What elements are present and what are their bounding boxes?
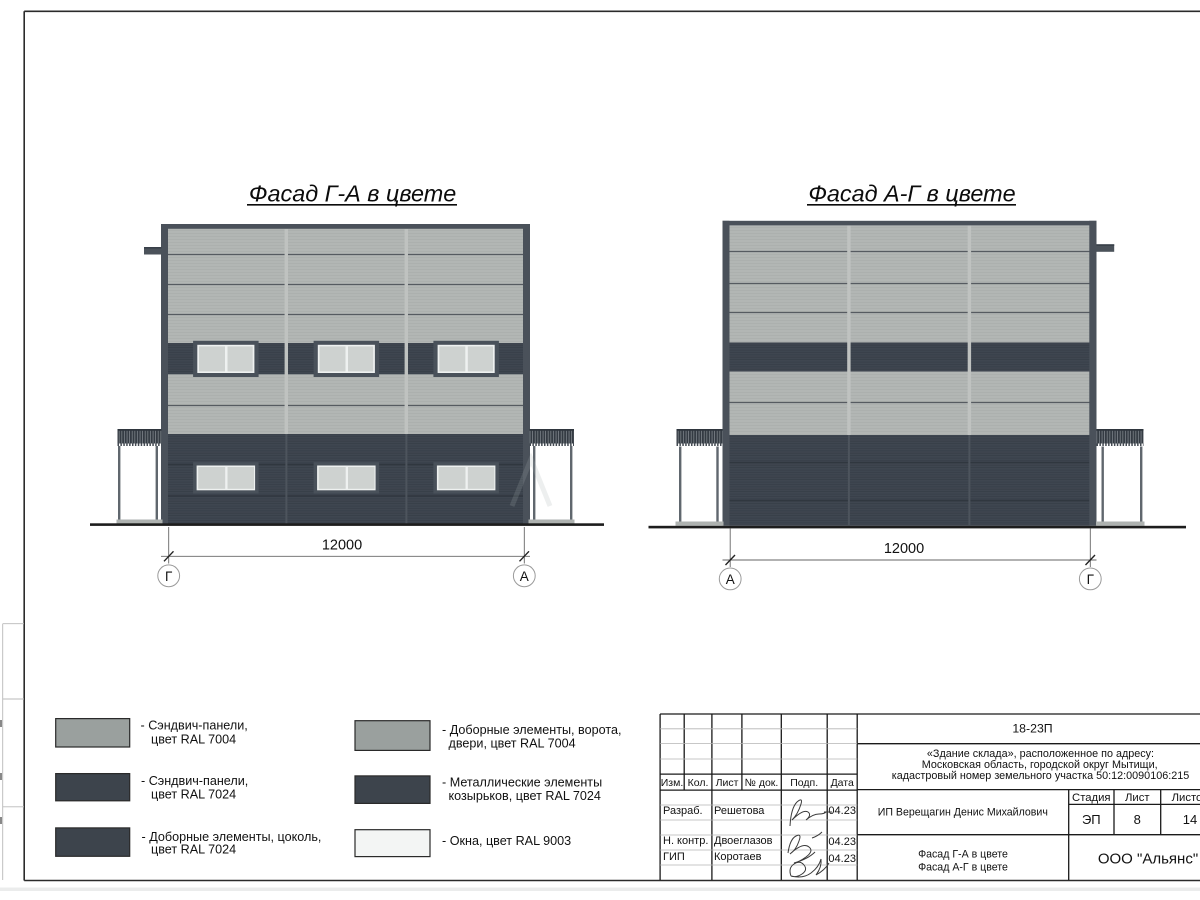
svg-text:ООО "Альянс": ООО "Альянс" bbox=[1098, 850, 1198, 867]
svg-text:кадастровый номер земельного у: кадастровый номер земельного участка 50:… bbox=[892, 770, 1189, 782]
svg-text:8: 8 bbox=[1134, 812, 1141, 827]
svg-text:Дата: Дата bbox=[831, 777, 854, 789]
svg-text:- Металлические элементы: - Металлические элементы bbox=[442, 775, 602, 789]
svg-text:12000: 12000 bbox=[322, 538, 362, 554]
svg-text:- Сэндвич-панели,: - Сэндвич-панели, bbox=[141, 719, 248, 733]
svg-text:04.23: 04.23 bbox=[828, 836, 856, 848]
svg-text:А: А bbox=[520, 569, 529, 584]
svg-text:А: А bbox=[726, 572, 735, 587]
svg-text:цвет RAL 7024: цвет RAL 7024 bbox=[151, 842, 236, 856]
svg-text:Фасад Г-А в цвете: Фасад Г-А в цвете bbox=[918, 848, 1008, 860]
svg-text:ЭП: ЭП bbox=[1082, 812, 1101, 827]
svg-text:- Доборные элементы, ворота,: - Доборные элементы, ворота, bbox=[442, 723, 621, 737]
svg-text:Решетова: Решетова bbox=[714, 805, 765, 817]
svg-text:Г: Г bbox=[165, 569, 173, 584]
svg-text:Листов: Листов bbox=[1172, 792, 1200, 804]
svg-text:ИП Верещагин Денис Михайлович: ИП Верещагин Денис Михайлович bbox=[878, 807, 1048, 819]
svg-text:Кол.: Кол. bbox=[688, 777, 709, 789]
svg-text:14: 14 bbox=[1183, 812, 1197, 827]
svg-text:- Сэндвич-панели,: - Сэндвич-панели, bbox=[141, 774, 248, 788]
svg-text:Коротаев: Коротаев bbox=[714, 851, 762, 863]
svg-text:двери, цвет RAL 7004: двери, цвет RAL 7004 bbox=[449, 737, 576, 751]
svg-text:Фасад А-Г в цвете: Фасад А-Г в цвете bbox=[918, 862, 1008, 874]
svg-text:04.23: 04.23 bbox=[828, 805, 856, 817]
svg-text:- Окна, цвет RAL 9003: - Окна, цвет RAL 9003 bbox=[442, 834, 571, 848]
svg-text:Изм.: Изм. bbox=[661, 777, 684, 789]
svg-text:козырьков, цвет RAL 7024: козырьков, цвет RAL 7024 bbox=[449, 789, 601, 803]
svg-text:Подп.: Подп. bbox=[790, 777, 818, 789]
svg-text:цвет RAL 7024: цвет RAL 7024 bbox=[151, 788, 236, 802]
svg-text:Разраб.: Разраб. bbox=[663, 805, 703, 817]
svg-text:18-23П: 18-23П bbox=[1012, 721, 1052, 735]
svg-text:Н. контр.: Н. контр. bbox=[663, 835, 708, 847]
svg-text:12000: 12000 bbox=[884, 541, 924, 557]
svg-text:цвет RAL 7004: цвет RAL 7004 bbox=[151, 732, 236, 746]
svg-text:ГИП: ГИП bbox=[663, 851, 685, 863]
svg-text:Г: Г bbox=[1087, 572, 1095, 587]
svg-text:Стадия: Стадия bbox=[1072, 792, 1111, 804]
svg-text:Лист: Лист bbox=[716, 777, 739, 789]
svg-text:Лист: Лист bbox=[1125, 792, 1150, 804]
svg-text:№ док.: № док. bbox=[745, 777, 779, 789]
svg-text:04.23: 04.23 bbox=[828, 853, 856, 865]
svg-text:Двоеглазов: Двоеглазов bbox=[714, 835, 773, 847]
svg-text:Фасад А-Г в цвете: Фасад А-Г в цвете bbox=[808, 181, 1015, 207]
svg-text:Фасад Г-А в цвете: Фасад Г-А в цвете bbox=[249, 181, 456, 207]
